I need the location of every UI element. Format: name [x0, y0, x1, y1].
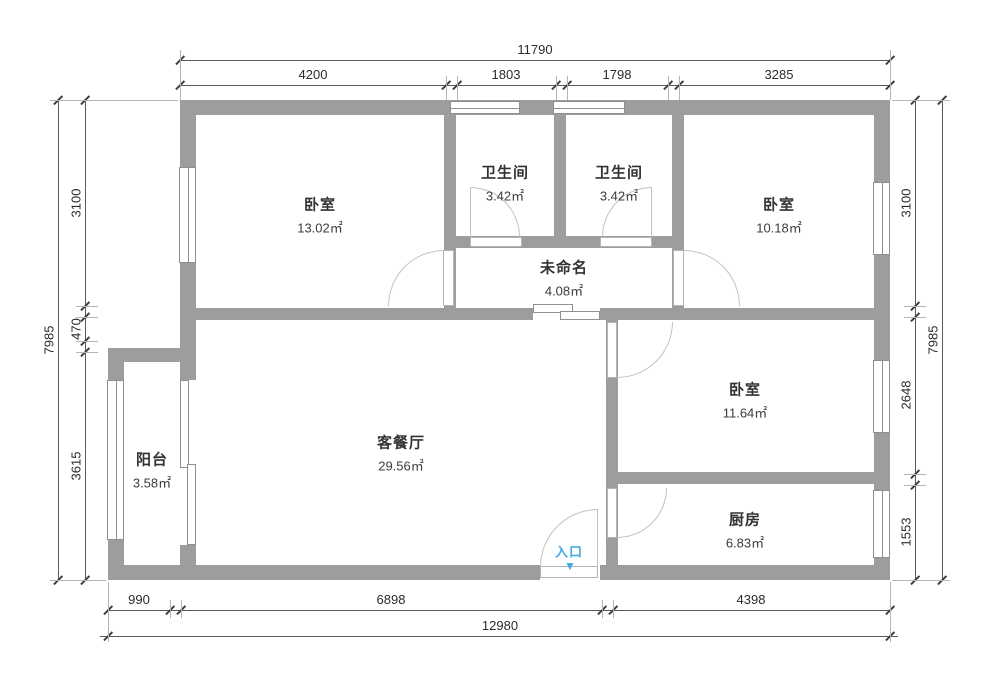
extension-line — [180, 50, 181, 100]
dim-line-right-segments — [915, 100, 916, 580]
door-leaf-bathroom-right — [600, 237, 652, 247]
door-open-line-bathroom-right — [651, 187, 652, 237]
door-leaf-bedroom-top-left — [443, 250, 454, 306]
extension-line — [679, 76, 680, 100]
room-name: 卫生间 — [481, 162, 529, 183]
extension-line — [76, 352, 98, 353]
door-leaf-bathroom-left — [470, 237, 522, 247]
floor-plan: 卧室 13.02㎡ 卫生间 3.42㎡ 卫生间 3.42㎡ 卧室 10.18㎡ … — [0, 0, 1000, 700]
room-label-hallway: 未命名 4.08㎡ — [540, 257, 588, 300]
room-area: 3.42㎡ — [595, 186, 643, 205]
dim-top-segment: 3285 — [765, 67, 794, 82]
window-balcony — [107, 380, 124, 540]
room-area: 29.56㎡ — [377, 456, 425, 475]
room-area: 3.42㎡ — [481, 186, 529, 205]
door-arc-kitchen — [617, 488, 667, 538]
room-label-bedroom-top-left: 卧室 13.02㎡ — [297, 194, 343, 237]
window-bedroom-top-left — [179, 167, 196, 263]
dim-line-bottom-segments — [108, 610, 890, 611]
room-area: 10.18㎡ — [756, 218, 802, 237]
dim-bottom-segment: 990 — [128, 592, 150, 607]
room-name: 卧室 — [297, 194, 343, 215]
room-area: 6.83㎡ — [726, 533, 764, 552]
dim-bottom-total: 12980 — [482, 618, 518, 633]
extension-line — [76, 341, 98, 342]
extension-line — [567, 76, 568, 100]
dim-right-total: 7985 — [926, 326, 941, 355]
extension-line — [50, 580, 106, 581]
dim-bottom-segment: 4398 — [737, 592, 766, 607]
wall-balcony-top — [108, 348, 182, 362]
dim-line-top-total — [180, 60, 890, 61]
room-name: 未命名 — [540, 257, 588, 278]
dim-left-segment: 3100 — [69, 189, 84, 218]
extension-line — [50, 100, 178, 101]
room-area: 13.02㎡ — [297, 218, 343, 237]
extension-line — [892, 580, 950, 581]
extension-line — [613, 600, 614, 618]
entrance-arrow-icon: ▼ — [564, 560, 576, 572]
door-open-line-bathroom-left — [470, 187, 471, 237]
extension-line — [904, 485, 926, 486]
dim-right-segment: 2648 — [899, 381, 914, 410]
sliding-door-balcony-panel — [187, 464, 196, 545]
extension-line — [890, 582, 891, 642]
room-label-bedroom-right: 卧室 11.64㎡ — [723, 379, 768, 422]
dim-left-segment: 3615 — [69, 452, 84, 481]
dim-left-total: 7985 — [42, 326, 57, 355]
room-name: 客餐厅 — [377, 432, 425, 453]
door-leaf-kitchen — [607, 488, 617, 538]
door-leaf-bedroom-top-right — [673, 250, 684, 306]
room-name: 厨房 — [726, 509, 764, 530]
extension-line — [76, 317, 98, 318]
dim-right-segment: 1553 — [899, 518, 914, 547]
wall-exterior-bottom — [108, 565, 890, 580]
room-label-kitchen: 厨房 6.83㎡ — [726, 509, 764, 552]
room-name: 卧室 — [756, 194, 802, 215]
door-open-line-entrance — [597, 509, 598, 567]
wall-bedroom-kitchen-divider — [606, 472, 890, 484]
dim-top-segment: 1803 — [492, 67, 521, 82]
extension-line — [108, 582, 109, 642]
dim-top-segment: 4200 — [299, 67, 328, 82]
window-bedroom-right — [873, 360, 890, 433]
room-area: 3.58㎡ — [133, 473, 171, 492]
window-bathroom-left — [450, 101, 520, 114]
door-arc-bedroom-top-right — [684, 250, 740, 306]
room-area: 4.08㎡ — [540, 281, 588, 300]
wall-bathroom-divider — [554, 114, 566, 236]
extension-line — [446, 76, 447, 100]
extension-line — [556, 76, 557, 100]
extension-line — [904, 317, 926, 318]
dim-top-total: 11790 — [517, 42, 552, 57]
dim-bottom-segment: 6898 — [377, 592, 406, 607]
room-name: 卫生间 — [595, 162, 643, 183]
room-label-balcony: 阳台 3.58㎡ — [133, 449, 171, 492]
sliding-door-hallway-panel — [560, 311, 600, 320]
room-label-bathroom-right: 卫生间 3.42㎡ — [595, 162, 643, 205]
dim-top-segment: 1798 — [603, 67, 632, 82]
room-label-bedroom-top-right: 卧室 10.18㎡ — [756, 194, 802, 237]
extension-line — [668, 76, 669, 100]
room-label-bathroom-left: 卫生间 3.42㎡ — [481, 162, 529, 205]
window-kitchen — [873, 490, 890, 558]
room-label-living-dining: 客餐厅 29.56㎡ — [377, 432, 425, 475]
dim-line-top-segments — [180, 85, 890, 86]
extension-line — [170, 600, 171, 618]
sliding-door-balcony-panel — [180, 380, 189, 468]
window-bathroom-right — [553, 101, 625, 114]
dim-line-right-total — [942, 100, 943, 580]
extension-line — [904, 474, 926, 475]
room-name: 阳台 — [133, 449, 171, 470]
extension-line — [602, 600, 603, 618]
wall-exterior-top — [180, 100, 890, 115]
door-leaf-bedroom-right — [607, 322, 617, 378]
dim-line-bottom-total — [100, 636, 898, 637]
extension-line — [457, 76, 458, 100]
door-arc-bedroom-right — [617, 322, 673, 378]
extension-line — [890, 50, 891, 100]
door-arc-bedroom-top-left — [388, 250, 444, 306]
extension-line — [181, 600, 182, 618]
extension-line — [892, 100, 950, 101]
room-area: 11.64㎡ — [723, 403, 768, 422]
entrance-label: 入口 — [555, 542, 583, 561]
dim-line-left-total — [58, 100, 59, 580]
dim-right-segment: 3100 — [899, 189, 914, 218]
room-name: 卧室 — [723, 379, 768, 400]
extension-line — [76, 306, 98, 307]
window-bedroom-top-right — [873, 182, 890, 255]
extension-line — [904, 306, 926, 307]
